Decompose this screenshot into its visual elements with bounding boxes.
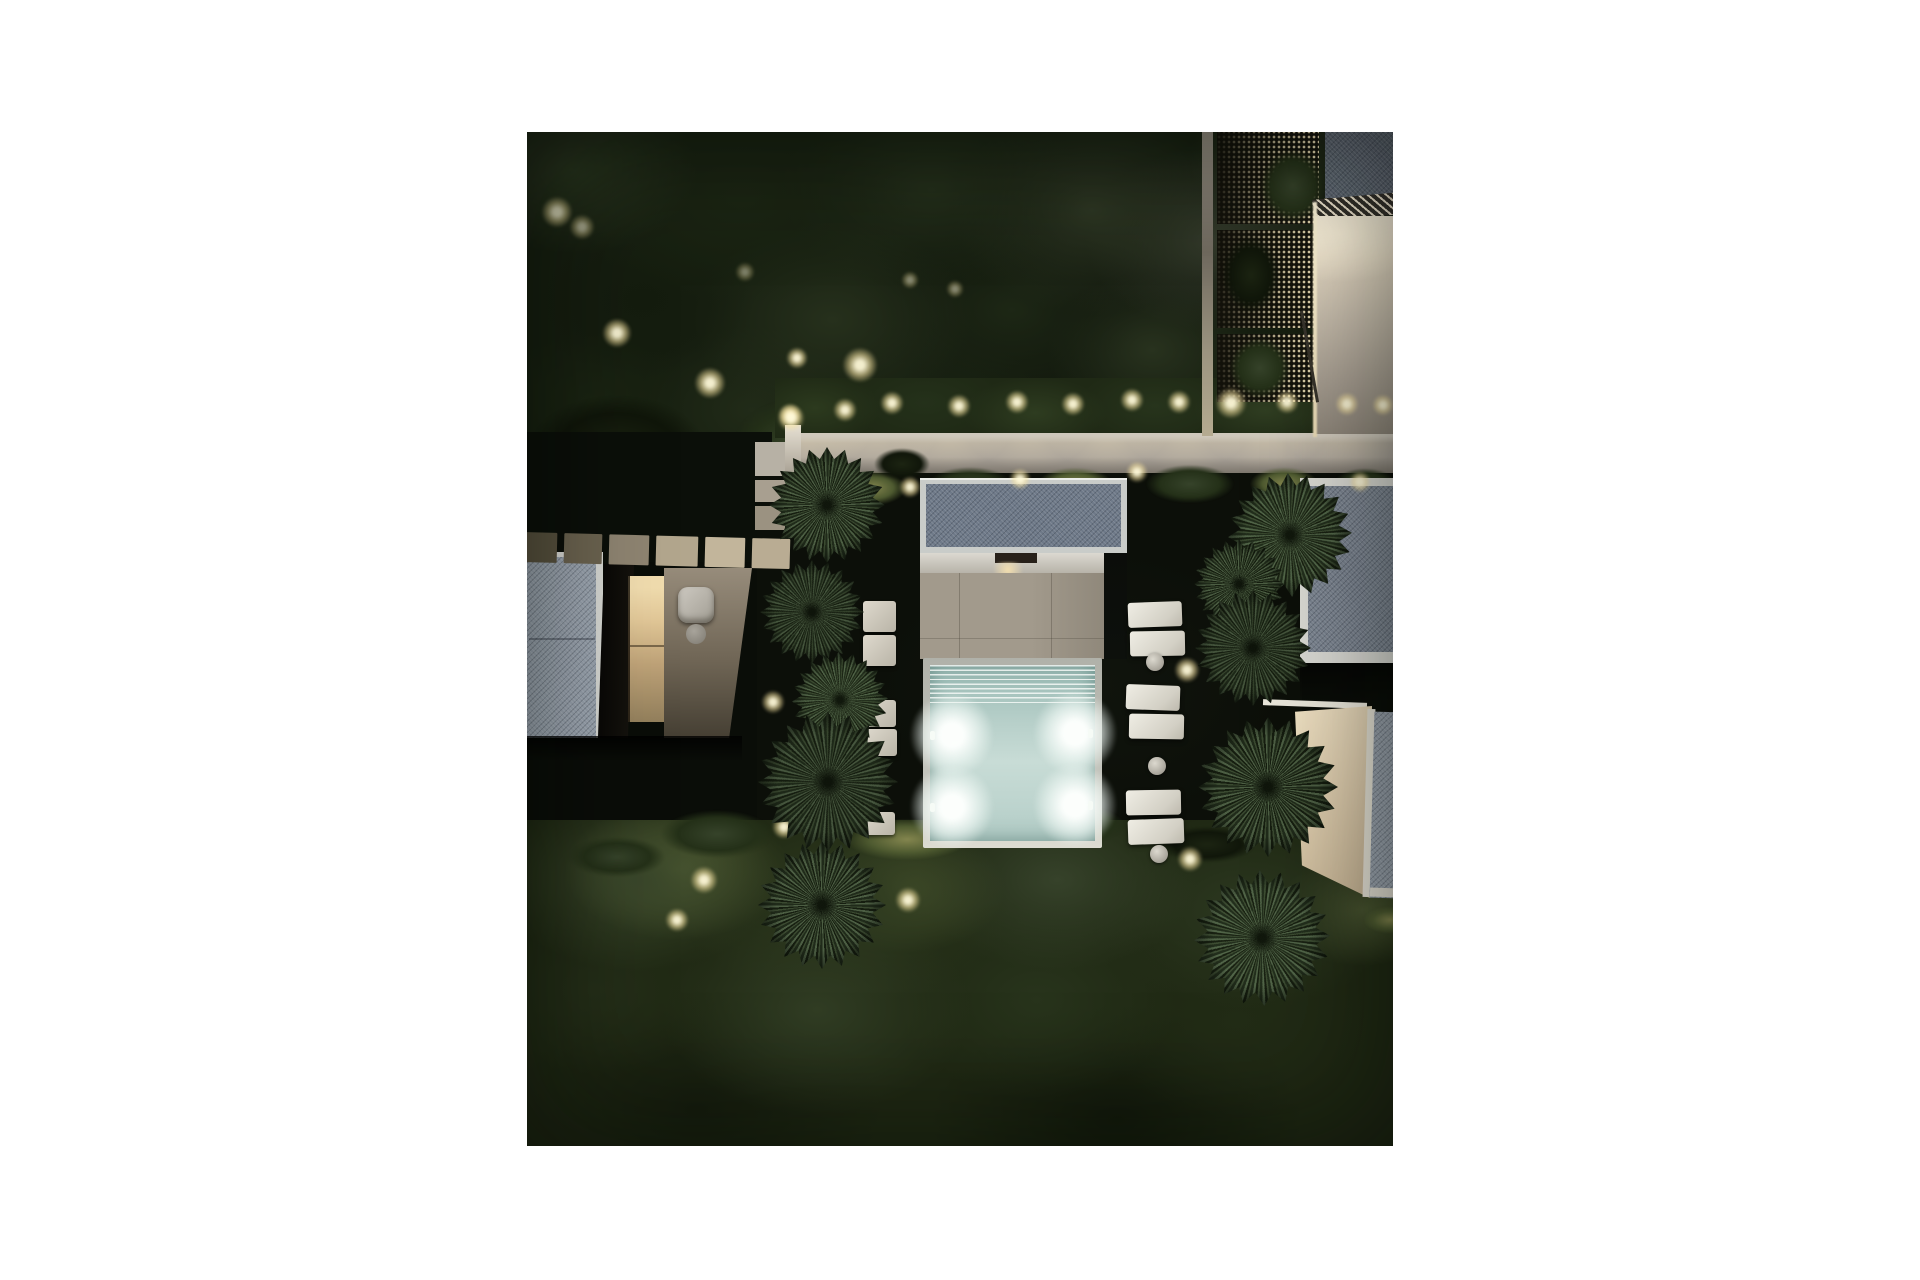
hedge-light	[1275, 390, 1299, 414]
garden-light	[901, 271, 919, 289]
hedge-light	[833, 398, 857, 422]
ottoman	[1126, 684, 1181, 711]
page	[0, 0, 1920, 1280]
garden-light	[569, 214, 595, 240]
hedge-light	[947, 394, 971, 418]
side-stool	[686, 624, 706, 644]
pool-light-fixture	[930, 731, 935, 740]
paver	[564, 533, 603, 564]
pavilion-roof-gravel	[926, 484, 1121, 547]
building-left-interior-seam	[630, 645, 664, 647]
building-left-roof	[527, 552, 603, 738]
garden-light	[602, 318, 632, 348]
building-br-gravel	[1370, 712, 1393, 899]
building-right-shadow	[1300, 663, 1393, 703]
courtyard-light	[665, 908, 689, 932]
ottoman-left	[863, 635, 896, 666]
paver-vertical	[755, 442, 785, 476]
garden-light	[541, 196, 573, 228]
building-left-lit-interior	[628, 576, 664, 722]
shrub-light	[1009, 468, 1031, 490]
garden-light	[694, 367, 726, 399]
hedge-light	[880, 391, 904, 415]
garden-light	[946, 280, 964, 298]
corner-light	[777, 404, 805, 432]
armchair	[678, 587, 714, 623]
villa-aerial-photo	[527, 132, 1393, 1146]
hedge-light	[1167, 390, 1191, 414]
pool-light-glow	[1033, 763, 1117, 847]
patio	[920, 573, 1104, 659]
paver	[609, 534, 650, 565]
building-br-corner	[1370, 887, 1393, 897]
hedge-light	[1335, 392, 1359, 416]
courtyard-light	[1174, 657, 1200, 683]
courtyard-light	[761, 690, 785, 714]
ottoman	[1126, 790, 1181, 816]
shrub-light	[899, 476, 921, 498]
pool-light-fixture	[1088, 729, 1093, 738]
paver	[752, 538, 791, 569]
side-table	[1146, 653, 1164, 671]
paver	[527, 532, 557, 563]
pool-light-fixture	[1088, 801, 1093, 810]
hedge-light	[1120, 388, 1144, 412]
courtyard-light	[690, 866, 718, 894]
building-left-ground-shadow	[527, 736, 742, 762]
hedge-light	[1061, 392, 1085, 416]
shrub-light	[1349, 471, 1371, 493]
garden-light	[735, 262, 755, 282]
courtyard-light	[895, 887, 921, 913]
ottoman-left	[863, 601, 896, 632]
building-left-roof-seam	[529, 638, 595, 640]
paver	[656, 536, 699, 567]
side-table	[1150, 845, 1168, 863]
ottoman	[1128, 818, 1185, 845]
pavilion-side-shadow	[1104, 553, 1127, 659]
courtyard-light	[1177, 846, 1203, 872]
garden-light	[842, 347, 878, 383]
hedge-light	[1215, 387, 1247, 419]
pool-light-fixture	[930, 803, 935, 812]
light-wall-strip	[1202, 132, 1213, 436]
paver	[705, 537, 746, 568]
hedge-light	[1005, 390, 1029, 414]
pool-light-glow	[910, 765, 994, 849]
ottoman	[1128, 601, 1183, 628]
shrub-light	[1126, 461, 1148, 483]
ottoman	[1129, 714, 1184, 740]
side-table	[1148, 757, 1166, 775]
hedge-light	[1372, 394, 1393, 416]
garden-light	[786, 347, 808, 369]
roof-top-right	[1325, 132, 1393, 200]
